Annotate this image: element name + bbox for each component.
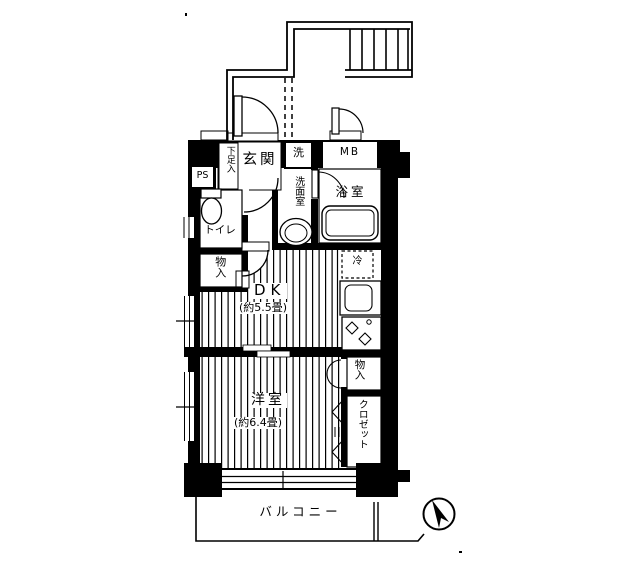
bath-door-leaf	[312, 170, 318, 198]
stair-treads	[350, 29, 408, 70]
label-western-name: 洋室	[249, 393, 287, 408]
north-compass-icon	[424, 499, 455, 530]
floorplan-page: 下足入 玄関 洗 MB PS トイレ 物入 洗面室 浴室 冷 DK (約5.5畳…	[0, 0, 640, 569]
mb-door-swing	[339, 109, 363, 133]
label-entrance: 玄関	[240, 153, 280, 168]
label-refrigerator: 冷	[342, 257, 373, 268]
entrance-door-swing	[242, 97, 278, 133]
stove-counter	[342, 317, 381, 350]
label-dk-size: (約5.5畳)	[237, 302, 289, 314]
corridor-stairs	[227, 22, 412, 140]
floorplan-drawing	[0, 0, 640, 569]
label-balcony: バルコニー	[243, 505, 358, 518]
label-shoe-storage: 下足入	[221, 146, 237, 188]
toilet-bowl	[202, 198, 222, 224]
label-storage-hall: 物入	[212, 256, 228, 286]
label-toilet: トイレ	[198, 225, 242, 236]
label-western-size: (約6.4畳)	[232, 417, 284, 429]
label-washroom: 洗面室	[291, 176, 304, 231]
mb-door-leaf	[332, 108, 339, 134]
label-meter-box: MB	[323, 147, 377, 158]
label-storage-bedroom: 物入	[351, 359, 367, 389]
entrance-door-leaf	[234, 96, 242, 136]
label-pipe-space: PS	[192, 171, 213, 181]
label-closet: クロゼット	[354, 399, 368, 465]
label-dk-name: DK	[252, 283, 287, 299]
kitchen-sink	[345, 285, 372, 311]
label-bathroom: 浴室	[326, 185, 376, 198]
toilet-tank	[201, 189, 221, 198]
label-washer: 洗	[285, 147, 312, 159]
